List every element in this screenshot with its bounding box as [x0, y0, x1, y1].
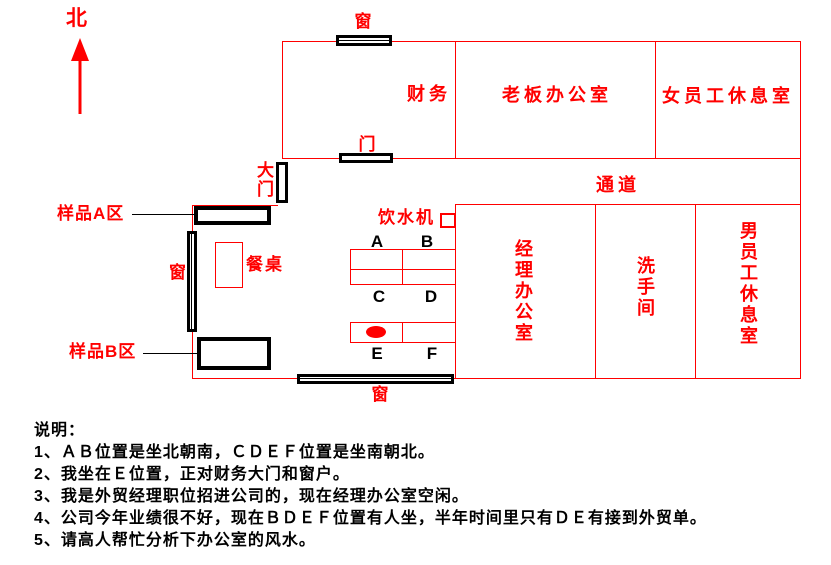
- desk-divider-vertical: [402, 250, 403, 284]
- note-line-5: 5、请高人帮忙分析下办公室的风水。: [34, 530, 707, 552]
- main-door-label: 大门: [257, 161, 276, 199]
- sample-b-label: 样品B区: [69, 343, 136, 361]
- room-label-finance: 财务: [407, 85, 451, 103]
- seat-marker-e: [366, 326, 386, 338]
- wall-corridor-bottom: [455, 204, 801, 205]
- sample-a-callout-line: [132, 214, 195, 215]
- north-label: 北: [66, 10, 87, 28]
- wall-bottom: [192, 378, 801, 379]
- north-arrow-icon: [60, 33, 100, 118]
- sample-a-rect: [194, 206, 271, 225]
- room-label-corridor: 通道: [596, 176, 640, 194]
- notes-block: 说明： 1、ＡＢ位置是坐北朝南，ＣＤＥＦ位置是坐南朝北。 2、我坐在Ｅ位置，正对…: [34, 420, 707, 552]
- main-door: [276, 162, 288, 203]
- note-line-3: 3、我是外贸经理职位招进公司的，现在经理办公室空闲。: [34, 486, 707, 508]
- note-line-1: 1、ＡＢ位置是坐北朝南，ＣＤＥＦ位置是坐南朝北。: [34, 442, 707, 464]
- wall-restroom-lounge-divider: [695, 204, 696, 378]
- room-label-female-lounge: 女员工休息室: [662, 87, 794, 105]
- sample-b-rect: [197, 337, 271, 370]
- wall-right: [800, 41, 801, 379]
- dining-table-rect: [215, 242, 243, 288]
- room-label-restroom: 洗手间: [635, 256, 655, 319]
- desk-divider-vertical: [402, 323, 403, 342]
- desk-label-f: F: [427, 344, 437, 364]
- wall-finance-left: [282, 41, 283, 158]
- window-top: [336, 35, 392, 46]
- note-line-2: 2、我坐在Ｅ位置，正对财务大门和窗户。: [34, 464, 707, 486]
- finance-door: [339, 153, 393, 163]
- finance-door-label: 门: [359, 136, 376, 154]
- sample-b-callout-line: [143, 353, 198, 354]
- notes-heading: 说明：: [34, 420, 707, 442]
- desk-block-abcd: [350, 249, 456, 285]
- wall-finance-boss-divider: [455, 41, 456, 158]
- window-bottom: [297, 374, 454, 384]
- dining-table-label: 餐桌: [246, 256, 284, 274]
- wall-manager-restroom-divider: [595, 204, 596, 378]
- note-line-4: 4、公司今年业绩很不好，现在ＢＤＥＦ位置有人坐，半年时间里只有ＤＥ有接到外贸单。: [34, 508, 707, 530]
- wall-boss-lounge-divider: [655, 41, 656, 158]
- room-label-male-lounge: 男员工休息室: [738, 221, 758, 347]
- water-dispenser-icon: [440, 213, 456, 228]
- desk-divider-horizontal: [351, 269, 455, 270]
- window-left: [187, 231, 197, 332]
- desk-label-e: E: [371, 344, 382, 364]
- water-dispenser-label: 饮水机: [378, 209, 435, 227]
- wall-office-right: [455, 204, 456, 378]
- room-label-manager-office: 经理办公室: [513, 239, 533, 344]
- window-bottom-label: 窗: [372, 386, 389, 404]
- sample-a-label: 样品A区: [57, 205, 124, 223]
- window-top-label: 窗: [355, 13, 372, 31]
- floor-plan: 北 财务 老板办公室 女员工休息室 通道 经理办公室 洗手间 男员工休息室 窗 …: [0, 0, 831, 415]
- desk-label-d: D: [425, 287, 437, 307]
- desk-label-c: C: [373, 287, 385, 307]
- room-label-boss-office: 老板办公室: [502, 86, 612, 104]
- window-left-label: 窗: [169, 264, 186, 282]
